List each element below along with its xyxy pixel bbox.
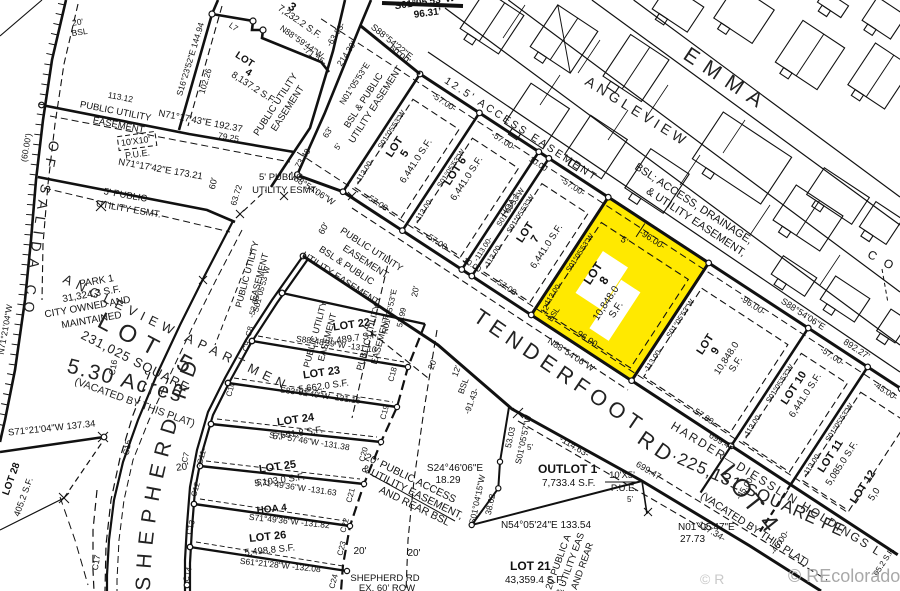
svg-text:P.U.E.: P.U.E. bbox=[611, 483, 637, 494]
svg-text:© R: © R bbox=[700, 571, 724, 587]
svg-text:18.29: 18.29 bbox=[435, 475, 460, 486]
svg-text:© REcolorado: © REcolorado bbox=[788, 566, 900, 586]
svg-text:5': 5' bbox=[527, 443, 533, 452]
svg-text:20': 20' bbox=[175, 461, 190, 474]
svg-text:N54°05'24"E 133.54: N54°05'24"E 133.54 bbox=[501, 520, 592, 531]
svg-text:LOT 21: LOT 21 bbox=[510, 559, 551, 573]
svg-text:5': 5' bbox=[627, 495, 633, 504]
svg-text:20': 20' bbox=[407, 548, 420, 559]
svg-text:7,733.4 S.F.: 7,733.4 S.F. bbox=[542, 478, 595, 489]
svg-text:27.73: 27.73 bbox=[680, 534, 705, 545]
svg-text:20': 20' bbox=[353, 546, 366, 557]
svg-text:10'X5': 10'X5' bbox=[609, 470, 635, 481]
svg-text:OUTLOT 1: OUTLOT 1 bbox=[538, 462, 598, 476]
svg-text:5' PUBLIC: 5' PUBLIC bbox=[259, 172, 303, 183]
svg-text:EX. 60’ ROW: EX. 60’ ROW bbox=[359, 583, 415, 591]
svg-text:S24°46'06"E: S24°46'06"E bbox=[427, 463, 483, 474]
